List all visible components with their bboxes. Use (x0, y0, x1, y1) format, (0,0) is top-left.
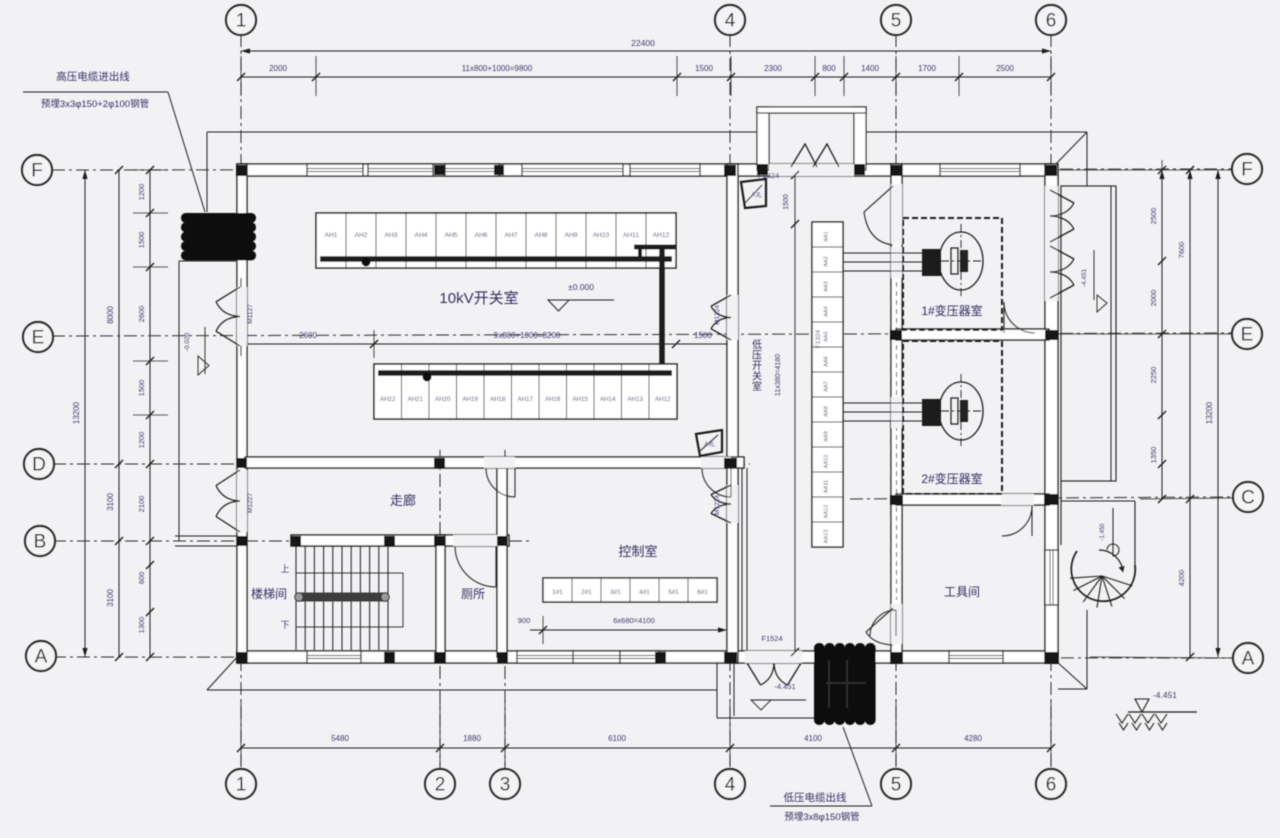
svg-text:F1524: F1524 (761, 634, 782, 643)
svg-text:AA2: AA2 (824, 256, 830, 267)
svg-text:F1324: F1324 (815, 329, 822, 348)
svg-text:楼梯间: 楼梯间 (251, 586, 287, 601)
svg-text:下: 下 (280, 620, 289, 630)
svg-text:厕所: 厕所 (461, 587, 485, 601)
svg-text:6x680=4100: 6x680=4100 (613, 616, 655, 625)
svg-text:AH17: AH17 (517, 396, 533, 403)
svg-text:8000: 8000 (106, 306, 115, 324)
svg-text:-4.451: -4.451 (1081, 268, 1088, 287)
svg-text:AA3: AA3 (824, 281, 830, 292)
svg-text:2250: 2250 (1149, 367, 1158, 384)
svg-text:预埋3x8φ150钢管: 预埋3x8φ150钢管 (784, 811, 859, 823)
svg-text:2: 2 (435, 775, 446, 796)
svg-text:1500: 1500 (137, 232, 146, 249)
svg-text:D: D (32, 455, 46, 476)
svg-text:13200: 13200 (1205, 401, 1214, 424)
svg-text:4280: 4280 (964, 734, 982, 743)
svg-text:900: 900 (518, 616, 531, 625)
svg-text:AA9: AA9 (824, 431, 830, 442)
svg-text:F: F (1241, 160, 1253, 181)
svg-text:1300: 1300 (137, 617, 146, 634)
svg-text:AH5: AH5 (445, 232, 458, 239)
svg-text:C: C (1241, 488, 1255, 509)
svg-text:2000: 2000 (1149, 290, 1158, 307)
svg-text:11x800+1000=9800: 11x800+1000=9800 (462, 64, 533, 73)
svg-text:M1224: M1224 (714, 305, 721, 325)
svg-text:工具间: 工具间 (944, 585, 980, 599)
svg-text:1200: 1200 (137, 432, 146, 449)
svg-text:2#变压器室: 2#变压器室 (921, 471, 982, 486)
svg-text:M1224: M1224 (714, 495, 721, 515)
svg-text:3100: 3100 (106, 493, 115, 511)
svg-text:AH12: AH12 (655, 396, 671, 403)
svg-text:6: 6 (1046, 775, 1057, 796)
svg-text:22400: 22400 (631, 38, 655, 48)
svg-text:5: 5 (891, 775, 902, 796)
svg-text:2500: 2500 (1149, 208, 1158, 225)
svg-text:7600: 7600 (1177, 242, 1186, 259)
svg-text:5480: 5480 (331, 734, 349, 743)
svg-text:6#1: 6#1 (697, 589, 708, 596)
svg-text:1350: 1350 (1149, 447, 1158, 464)
svg-text:人孔: 人孔 (703, 440, 715, 448)
svg-text:±0.000: ±0.000 (568, 282, 594, 292)
svg-text:1400: 1400 (861, 64, 879, 73)
svg-text:A: A (35, 647, 48, 668)
svg-text:1: 1 (236, 775, 247, 796)
svg-text:3: 3 (500, 775, 511, 796)
svg-text:1880: 1880 (463, 734, 481, 743)
svg-text:AA11: AA11 (824, 480, 830, 493)
svg-text:AH3: AH3 (385, 232, 398, 239)
svg-text:1500: 1500 (783, 194, 790, 210)
svg-text:预埋3x3φ150+2φ100钢管: 预埋3x3φ150+2φ100钢管 (41, 98, 149, 110)
svg-text:3100: 3100 (106, 589, 115, 607)
svg-text:-1.450: -1.450 (1100, 523, 1106, 541)
svg-text:AH13: AH13 (627, 396, 643, 403)
svg-text:AH9: AH9 (565, 232, 578, 239)
svg-text:低压开关室: 低压开关室 (752, 338, 762, 393)
svg-text:AH14: AH14 (600, 396, 616, 403)
svg-text:4: 4 (725, 11, 736, 32)
svg-text:5#1: 5#1 (668, 589, 679, 596)
svg-text:AH22: AH22 (380, 396, 396, 403)
svg-text:AH21: AH21 (407, 396, 423, 403)
svg-text:10kV开关室: 10kV开关室 (439, 290, 518, 307)
svg-text:F: F (31, 161, 43, 182)
svg-text:上: 上 (280, 564, 289, 574)
svg-text:-0.020: -0.020 (184, 332, 191, 351)
svg-text:低压电缆出线: 低压电缆出线 (784, 791, 847, 804)
svg-text:AA12: AA12 (824, 505, 830, 519)
svg-text:AH4: AH4 (415, 232, 428, 239)
svg-text:1200: 1200 (137, 184, 146, 201)
svg-text:2000: 2000 (269, 64, 287, 73)
svg-text:2500: 2500 (996, 64, 1014, 73)
svg-text:9x800+1000=8200: 9x800+1000=8200 (494, 331, 561, 340)
svg-text:AH16: AH16 (545, 396, 561, 403)
svg-text:E: E (1241, 325, 1254, 346)
svg-text:AA8: AA8 (824, 406, 830, 417)
svg-text:B: B (34, 532, 47, 553)
svg-text:M1127: M1127 (247, 304, 254, 324)
svg-text:1#变压器室: 1#变压器室 (921, 303, 982, 318)
svg-text:2600: 2600 (299, 331, 317, 340)
svg-text:6100: 6100 (608, 734, 626, 743)
svg-text:AA10: AA10 (824, 455, 830, 469)
svg-text:1700: 1700 (918, 64, 936, 73)
svg-text:AH10: AH10 (593, 232, 610, 239)
svg-text:M1227: M1227 (247, 493, 254, 513)
svg-text:高压电缆进出线: 高压电缆进出线 (56, 70, 130, 83)
svg-text:AH8: AH8 (535, 232, 548, 239)
svg-text:走廊: 走廊 (390, 493, 416, 508)
svg-text:1: 1 (236, 11, 247, 32)
svg-text:AA1: AA1 (824, 231, 830, 242)
svg-text:人孔: 人孔 (750, 191, 762, 199)
svg-text:2#1: 2#1 (581, 589, 592, 596)
svg-text:AA13: AA13 (824, 530, 830, 544)
svg-text:5: 5 (891, 11, 902, 32)
svg-text:13200: 13200 (72, 401, 81, 424)
svg-text:AA4: AA4 (824, 306, 830, 317)
svg-text:A: A (1242, 649, 1255, 670)
svg-text:1500: 1500 (695, 64, 713, 73)
svg-text:1500: 1500 (137, 380, 146, 397)
svg-text:AH2: AH2 (355, 232, 368, 239)
svg-text:E: E (32, 328, 45, 349)
svg-text:4#1: 4#1 (639, 589, 650, 596)
svg-text:AH1: AH1 (325, 232, 338, 239)
svg-text:AH15: AH15 (572, 396, 588, 403)
svg-text:AH18: AH18 (490, 396, 506, 403)
svg-text:控制室: 控制室 (618, 544, 657, 559)
svg-text:800: 800 (822, 64, 836, 73)
svg-text:AA7: AA7 (824, 381, 830, 392)
svg-text:AA5: AA5 (824, 331, 830, 342)
svg-text:AA6: AA6 (824, 356, 830, 367)
svg-text:2300: 2300 (764, 64, 782, 73)
svg-text:600: 600 (137, 572, 146, 585)
svg-text:AH7: AH7 (505, 232, 518, 239)
svg-text:1500: 1500 (694, 331, 712, 340)
svg-text:AH6: AH6 (475, 232, 488, 239)
svg-text:6: 6 (1046, 11, 1057, 32)
svg-text:-4.451: -4.451 (1153, 690, 1177, 700)
svg-text:1#1: 1#1 (552, 589, 563, 596)
svg-text:3#1: 3#1 (610, 589, 621, 596)
svg-text:AH12: AH12 (653, 232, 670, 239)
svg-text:4100: 4100 (804, 734, 822, 743)
svg-text:2600: 2600 (137, 306, 146, 323)
svg-text:4200: 4200 (1177, 570, 1186, 587)
svg-text:2100: 2100 (137, 496, 146, 513)
svg-text:AH11: AH11 (623, 232, 639, 239)
svg-text:AH20: AH20 (435, 396, 451, 403)
svg-text:4: 4 (725, 775, 736, 796)
svg-text:AH19: AH19 (462, 396, 478, 403)
svg-text:-4.451: -4.451 (774, 682, 795, 691)
svg-text:11x380=4180: 11x380=4180 (775, 354, 782, 396)
